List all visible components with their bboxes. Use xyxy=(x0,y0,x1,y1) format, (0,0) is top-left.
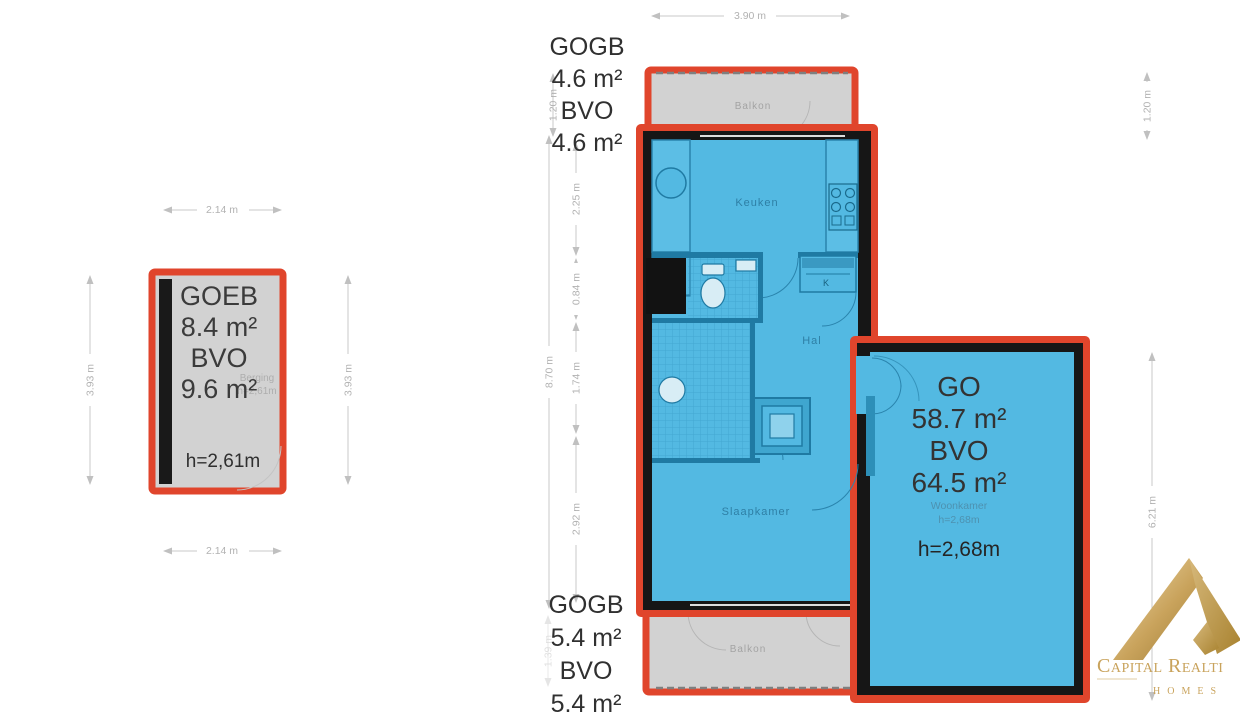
brand-logo: Capital Realti HOMES xyxy=(1093,548,1240,720)
dim-label: 1.20 m xyxy=(1142,90,1154,122)
annotation-line: GOEB xyxy=(158,281,280,312)
wall xyxy=(758,252,763,322)
dim-label: 0.84 m xyxy=(571,273,583,305)
annotation-line: 4.6 m² xyxy=(540,63,634,95)
balcony-bottom-label: Balkon xyxy=(730,644,767,655)
annotation-line: 5.4 m² xyxy=(538,622,634,655)
wall xyxy=(652,252,762,258)
wall xyxy=(652,318,763,323)
dim-label: 2.14 m xyxy=(206,545,238,557)
hand-basin xyxy=(736,260,756,271)
dim-label: 2.14 m xyxy=(206,204,238,216)
logo-mountain-icon xyxy=(1113,558,1203,660)
annotation-line: BVO xyxy=(878,435,1040,467)
kitchen-label: Keuken xyxy=(735,197,778,209)
faint-room-name: Woonkamer xyxy=(878,499,1040,513)
annotation-line: 9.6 m² xyxy=(158,374,280,405)
brand-name: Capital Realti xyxy=(1097,655,1223,677)
hall-label: Hal xyxy=(802,335,822,347)
washbasin xyxy=(659,377,685,403)
annotation-line: 8.4 m² xyxy=(158,312,280,343)
faint-room-height: h=2,68m xyxy=(878,513,1040,527)
logo-graphic: Capital Realti HOMES xyxy=(1093,548,1240,720)
balcony-bottom-annotation: GOGB 5.4 m² BVO 5.4 m² xyxy=(538,589,634,720)
annotation-line: 58.7 m² xyxy=(878,403,1040,435)
annotation-line: 64.5 m² xyxy=(878,467,1040,499)
kitchen-sink xyxy=(656,168,686,198)
dim-label: 1.74 m xyxy=(571,362,583,394)
wall xyxy=(652,458,760,463)
annotation-line: GOGB xyxy=(540,31,634,63)
annotation-line: BVO xyxy=(540,95,634,127)
annotation-line: 5.4 m² xyxy=(538,688,634,720)
dim-label: 2.25 m xyxy=(571,183,583,215)
annotation-line: 4.6 m² xyxy=(540,127,634,159)
living-annotation: GO 58.7 m² BVO 64.5 m² xyxy=(878,371,1040,499)
dim-label: 8.70 m xyxy=(544,356,556,388)
balcony-top-annotation: GOGB 4.6 m² BVO 4.6 m² xyxy=(540,31,634,159)
annotation-line: GOGB xyxy=(538,589,634,622)
toilet-tank xyxy=(702,264,724,275)
dim-label: 3.90 m xyxy=(734,10,766,22)
dim-label: 3.93 m xyxy=(85,364,97,396)
floorplan-page: Balkon Balkon xyxy=(0,0,1240,720)
shaft xyxy=(646,258,686,314)
annotation-line: GO xyxy=(878,371,1040,403)
annotation-line: BVO xyxy=(538,655,634,688)
balcony-top-label: Balkon xyxy=(735,101,772,112)
dim-label: 3.93 m xyxy=(343,364,355,396)
balcony-bottom: Balkon xyxy=(646,608,861,692)
living-faint-label: Woonkamer h=2,68m xyxy=(878,499,1040,527)
dim-label: 2.92 m xyxy=(571,503,583,535)
dim-label: 6.21 m xyxy=(1147,496,1159,528)
bedroom-label: Slaapkamer xyxy=(722,506,791,518)
toilet xyxy=(701,278,725,308)
radiator xyxy=(866,396,875,476)
brand-sub: HOMES xyxy=(1153,686,1223,697)
storage-height-label: h=2,61m xyxy=(162,451,284,473)
storage-annotation: GOEB 8.4 m² BVO 9.6 m² xyxy=(158,281,280,405)
living-height-label: h=2,68m xyxy=(878,538,1040,562)
stove xyxy=(829,184,857,230)
closet-label: K xyxy=(823,278,829,288)
annotation-line: BVO xyxy=(158,343,280,374)
